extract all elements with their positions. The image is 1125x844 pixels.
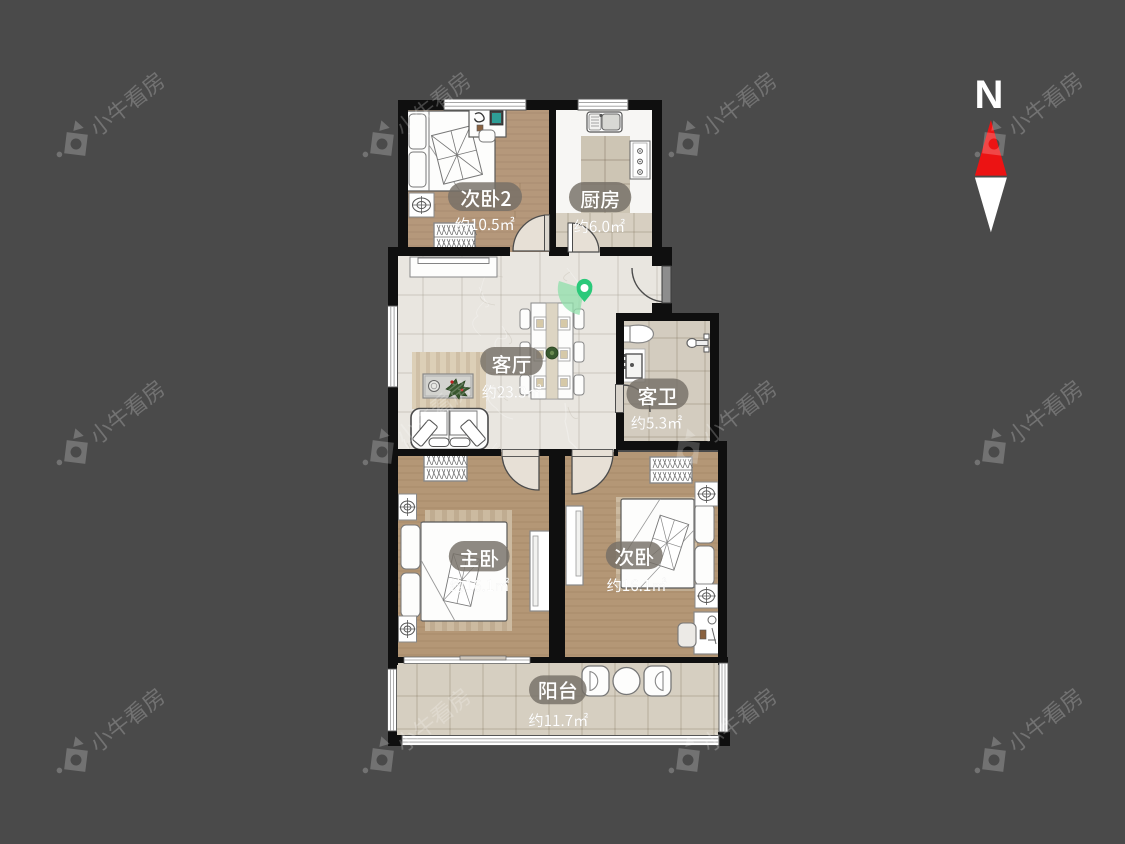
svg-text:N: N: [975, 73, 1004, 117]
